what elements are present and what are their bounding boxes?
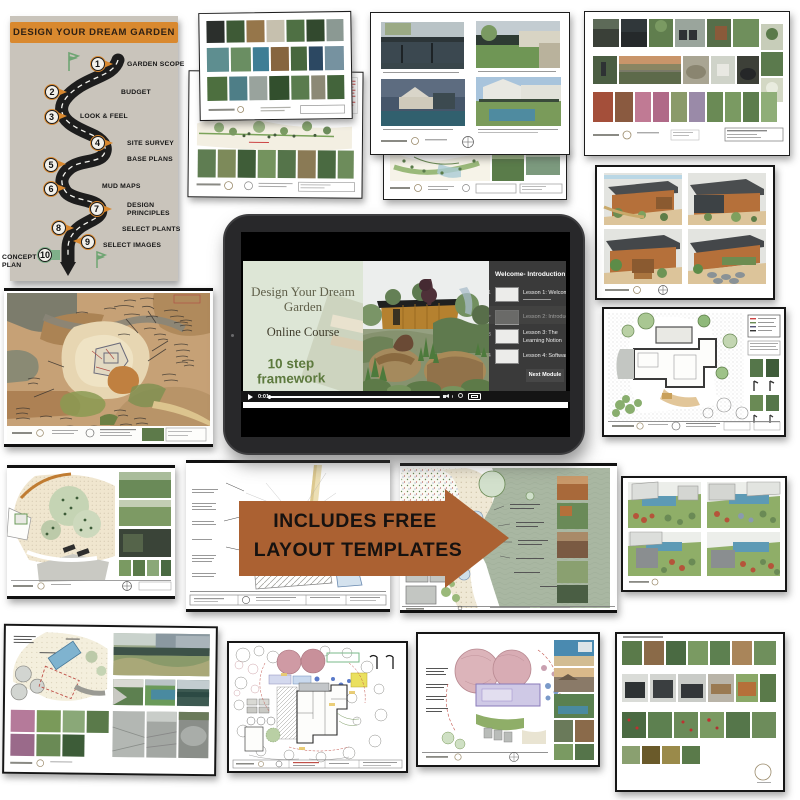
svg-text:INCLUDES FREE: INCLUDES FREE <box>273 510 437 532</box>
svg-text:LAYOUT TEMPLATES: LAYOUT TEMPLATES <box>254 539 462 561</box>
